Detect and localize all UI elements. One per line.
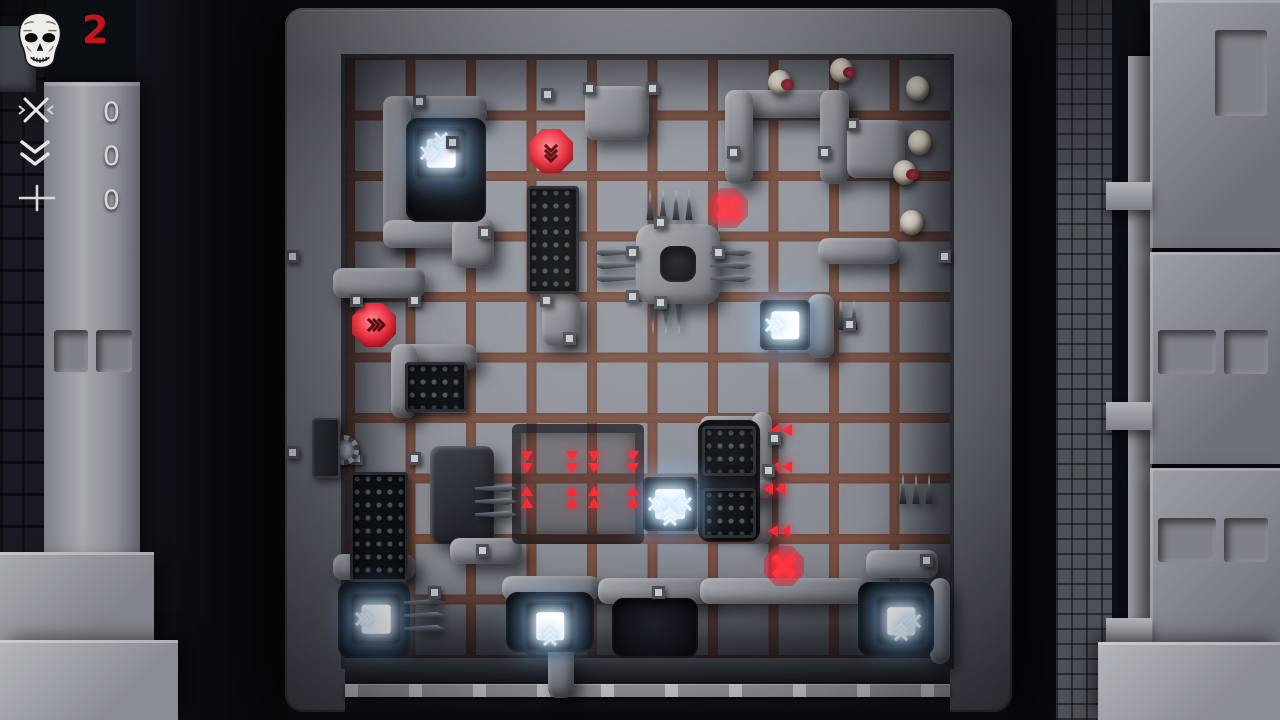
maze-wall-ring xyxy=(636,224,720,304)
wall-bracket xyxy=(350,294,363,307)
wall-bracket xyxy=(286,250,299,263)
spike-grate xyxy=(702,426,756,476)
floor-pit xyxy=(612,598,698,658)
cross-icon xyxy=(16,93,56,131)
wall-bracket xyxy=(413,95,426,108)
zombie-face-icon xyxy=(16,12,64,76)
plus-icon xyxy=(16,181,58,219)
red-x-marker[interactable] xyxy=(764,546,804,586)
spike xyxy=(674,304,684,334)
spike-strip-right xyxy=(475,484,517,519)
spike xyxy=(404,624,446,633)
red-arrow-indicator xyxy=(763,483,785,495)
wall-bracket xyxy=(843,318,856,331)
chevron-right-icon xyxy=(364,320,384,330)
wall-bracket xyxy=(563,332,576,345)
chevron-right-icon xyxy=(645,499,665,509)
double-chevron-down-icon xyxy=(16,137,54,175)
fan-unit[interactable] xyxy=(415,127,467,179)
trap-zone xyxy=(512,424,644,544)
wall-bracket xyxy=(654,216,667,229)
wall-bracket xyxy=(712,246,725,259)
zombie-wound xyxy=(843,67,856,78)
spike xyxy=(475,510,517,519)
right-structure-block xyxy=(1150,252,1280,464)
spike xyxy=(710,261,752,270)
ring-pit xyxy=(660,246,696,282)
chevron-right-icon xyxy=(762,320,782,330)
red-arrow-indicator xyxy=(566,486,578,508)
wall-bracket xyxy=(727,146,740,159)
chevron-down-icon xyxy=(436,129,446,149)
red-arrow-indicator xyxy=(588,451,600,473)
wall-machine xyxy=(312,418,340,478)
chevron-up-icon xyxy=(896,624,906,644)
red-button[interactable] xyxy=(529,129,573,173)
spike xyxy=(684,190,694,220)
wall-bracket xyxy=(626,290,639,303)
wall-bracket xyxy=(540,294,553,307)
spike-grate xyxy=(405,362,467,412)
spike xyxy=(593,261,635,270)
recessed-panel xyxy=(1158,518,1216,562)
red-button[interactable] xyxy=(352,303,396,347)
red-arrow-indicator xyxy=(768,525,790,537)
red-arrow-indicator xyxy=(521,451,533,473)
fan-unit[interactable] xyxy=(876,596,926,646)
wall-bracket xyxy=(818,146,831,159)
recessed-panel xyxy=(1215,30,1267,116)
maze-wall xyxy=(818,238,900,264)
chevron-right-icon xyxy=(352,614,372,624)
red-arrow-indicator xyxy=(588,486,600,508)
spike-grate xyxy=(527,186,579,294)
tool-double-chevron-count: 0 xyxy=(103,141,120,172)
recessed-panel xyxy=(54,330,88,372)
wall-bracket xyxy=(626,246,639,259)
zombie[interactable] xyxy=(906,76,929,101)
zombie[interactable] xyxy=(900,210,923,235)
spike xyxy=(710,274,752,283)
red-arrow-indicator xyxy=(627,486,639,508)
wall-bracket xyxy=(846,118,859,131)
spike xyxy=(404,598,446,607)
zombie[interactable] xyxy=(768,70,791,95)
chevron-left-icon xyxy=(904,616,924,626)
fan-unit[interactable] xyxy=(760,300,810,350)
tool-plus-count: 0 xyxy=(103,185,120,216)
spike-grate xyxy=(350,472,408,582)
spike-grate xyxy=(702,488,756,538)
recessed-panel xyxy=(1224,518,1268,562)
spike-strip-up xyxy=(645,190,694,220)
wall-bracket xyxy=(938,250,951,263)
maze-wall xyxy=(820,90,849,184)
tool-double-chevron-down[interactable]: 0 xyxy=(16,136,120,176)
wall-bracket xyxy=(920,554,933,567)
spike xyxy=(404,611,446,620)
wall-bracket xyxy=(768,432,781,445)
spike-strip-right xyxy=(404,598,446,633)
wall-bracket xyxy=(428,586,441,599)
wall-bracket xyxy=(446,136,459,149)
red-arrow-indicator xyxy=(566,451,578,473)
zombie-face-avatar xyxy=(16,12,64,80)
zombie-wound xyxy=(781,79,794,90)
fan-unit[interactable] xyxy=(525,601,575,651)
spike xyxy=(898,474,908,504)
wall-bracket xyxy=(286,446,299,459)
wall-bracket xyxy=(646,82,659,95)
right-structure-slab xyxy=(1098,642,1280,720)
recessed-panel xyxy=(1158,330,1216,374)
zombie[interactable] xyxy=(908,130,931,155)
spike xyxy=(924,474,934,504)
game-screen: 2 0 0 0 xyxy=(0,0,1280,720)
fan-unit[interactable] xyxy=(350,593,402,645)
spike xyxy=(475,484,517,493)
red-x-marker[interactable] xyxy=(708,188,748,228)
zombie-wound xyxy=(906,169,919,180)
wall-bracket xyxy=(654,296,667,309)
hud: 2 0 0 0 xyxy=(0,0,150,240)
red-arrow-indicator xyxy=(521,486,533,508)
spike-strip-up xyxy=(898,474,934,504)
right-structure-block xyxy=(1150,0,1280,248)
chevron-left-icon xyxy=(675,499,695,509)
recessed-panel xyxy=(96,330,132,372)
tool-cross-count: 0 xyxy=(103,97,120,128)
threat-counter: 2 xyxy=(82,8,108,52)
chevron-right-icon xyxy=(417,148,437,158)
spike xyxy=(593,274,635,283)
wall-bracket xyxy=(541,88,554,101)
chevron-down-icon xyxy=(546,141,556,161)
maze-wall xyxy=(548,644,574,698)
left-structure-slab xyxy=(0,552,154,646)
recessed-panel xyxy=(1224,330,1268,374)
wall-bracket xyxy=(652,586,665,599)
red-arrow-indicator xyxy=(627,451,639,473)
wall-bracket xyxy=(408,452,421,465)
spike xyxy=(671,190,681,220)
zombie[interactable] xyxy=(893,160,916,185)
left-structure-slab xyxy=(0,640,178,720)
wall-bracket xyxy=(583,82,596,95)
pillar-ledge xyxy=(1106,182,1152,210)
fan-unit[interactable] xyxy=(643,477,697,531)
wall-bracket xyxy=(478,226,491,239)
zombie[interactable] xyxy=(830,58,853,83)
spike xyxy=(911,474,921,504)
pillar-ledge xyxy=(1106,402,1152,430)
wall-bracket xyxy=(762,464,775,477)
chevron-up-icon xyxy=(665,509,675,529)
chevron-up-icon xyxy=(545,629,555,649)
wall-bracket xyxy=(408,294,421,307)
right-structure-grid-wall xyxy=(1056,0,1112,720)
maze-wall xyxy=(725,90,753,184)
tool-plus[interactable]: 0 xyxy=(16,180,120,220)
wall-bracket xyxy=(476,544,489,557)
maze-wall xyxy=(808,294,834,358)
tool-cross[interactable]: 0 xyxy=(16,92,120,132)
spike xyxy=(475,497,517,506)
